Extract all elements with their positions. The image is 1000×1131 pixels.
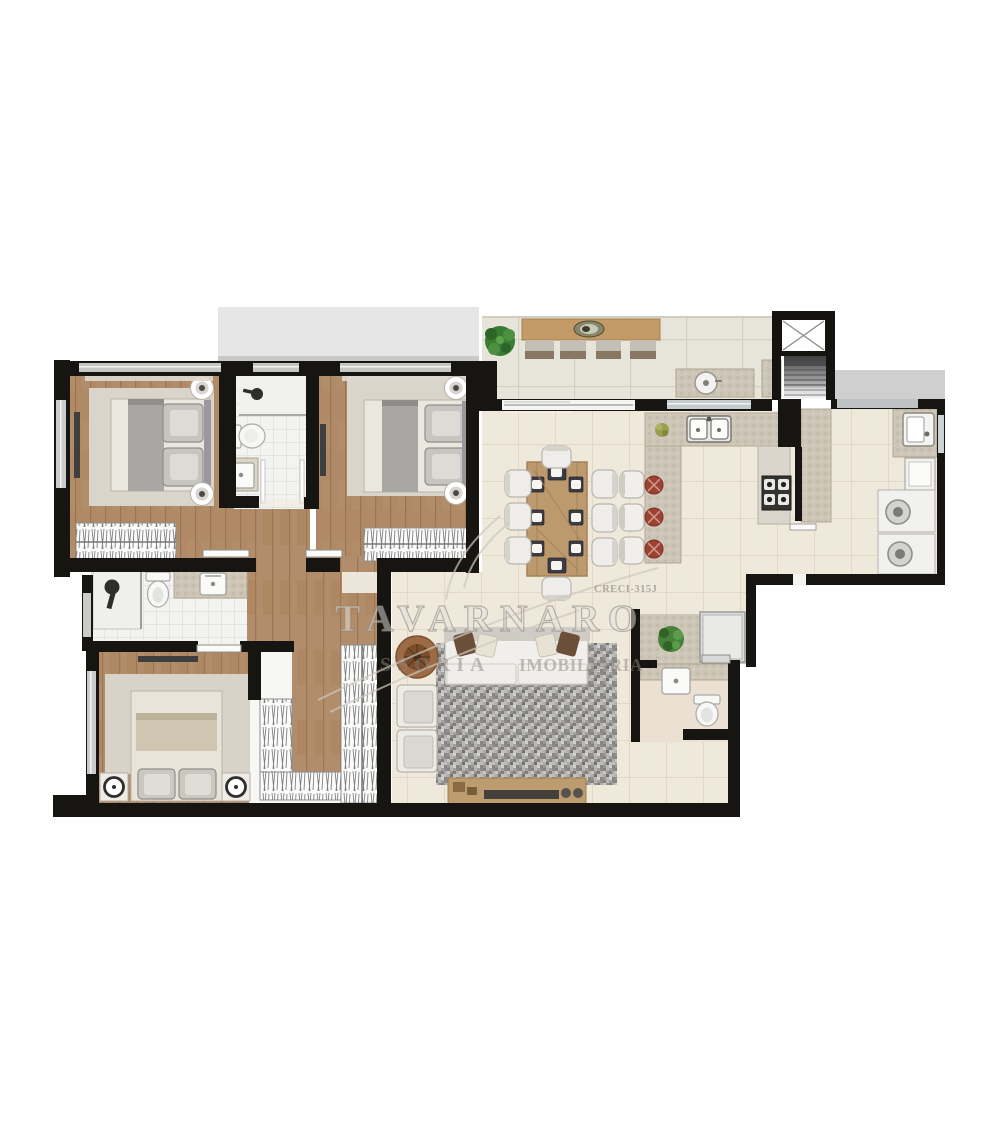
svg-text:IMOBILIÁRIA: IMOBILIÁRIA: [519, 655, 643, 675]
svg-text:TAVARNARO: TAVARNARO: [335, 598, 646, 640]
svg-text:SSORIA: SSORIA: [380, 654, 490, 676]
svg-text:CRECI-315J: CRECI-315J: [594, 584, 657, 595]
